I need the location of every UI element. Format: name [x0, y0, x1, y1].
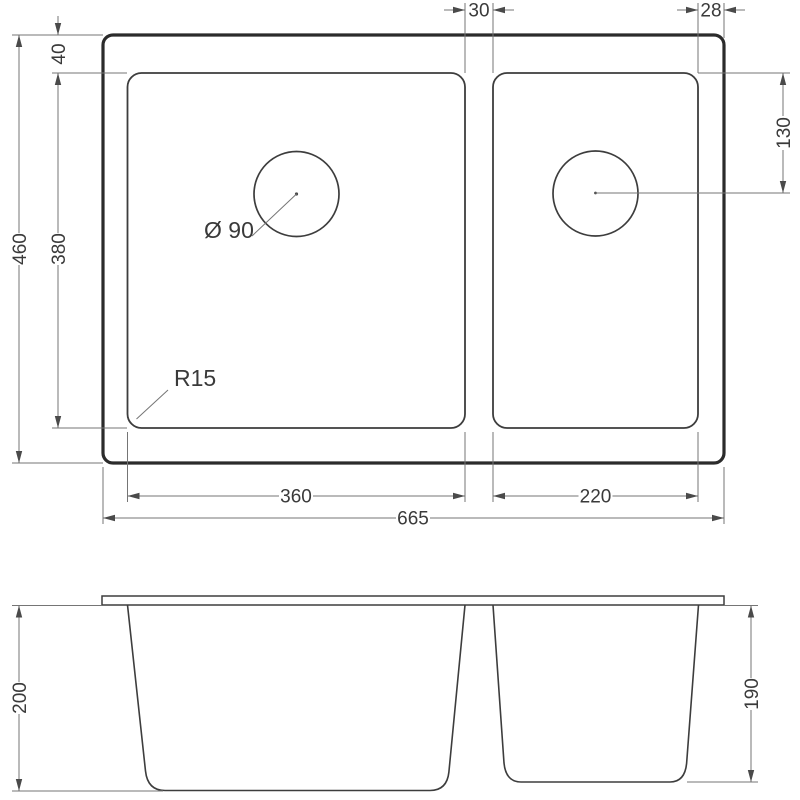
technical-drawing-canvas: 30 28 460 40: [0, 0, 800, 800]
callout-drain-diameter: Ø 90: [204, 194, 297, 243]
arrowhead: [16, 35, 22, 47]
right-bowl-plan: [493, 73, 698, 428]
rim-profile: [102, 596, 724, 605]
dim-label-divider-width: 30: [468, 1, 489, 22]
dim-label-left-bowl-depth: 200: [10, 682, 31, 714]
dimension-left-bowl-depth: 200: [10, 606, 163, 792]
dimension-overall-width: 665: [103, 467, 724, 530]
sink-dimension-drawing: 30 28 460 40: [0, 0, 800, 800]
arrowhead: [780, 181, 786, 193]
top-view: 30 28 460 40: [10, 1, 795, 530]
dimension-divider-width: 30: [444, 1, 514, 74]
arrowhead: [493, 493, 505, 499]
arrowhead: [712, 515, 724, 521]
dimension-right-bowl-width: 220: [493, 432, 698, 508]
arrowhead: [55, 416, 61, 428]
dimension-bowl-depth: 380: [49, 73, 127, 428]
arrowhead: [128, 493, 140, 499]
dim-label-bowl-depth: 380: [49, 233, 70, 265]
dimension-left-bowl-width: 360: [128, 432, 466, 508]
arrowhead: [55, 73, 61, 85]
left-bowl-profile: [128, 605, 466, 791]
right-bowl-profile: [493, 605, 699, 782]
label-corner-radius: R15: [174, 365, 216, 391]
dim-label-right-bowl-width: 220: [580, 487, 612, 508]
arrowhead: [103, 515, 115, 521]
dim-label-top-margin: 40: [49, 43, 70, 64]
arrowhead: [686, 493, 698, 499]
dim-label-right-bowl-depth: 190: [742, 678, 763, 710]
dimension-top-margin: 40: [49, 16, 70, 65]
arrowhead: [55, 23, 61, 35]
arrowhead: [453, 493, 465, 499]
dimension-right-margin: 28: [677, 1, 745, 74]
sink-outer-edge: [103, 35, 724, 463]
arrowhead: [748, 770, 754, 782]
dim-label-drain-offset: 130: [774, 117, 795, 149]
callout-corner-radius: R15: [137, 365, 217, 419]
arrowhead: [780, 73, 786, 85]
arrowhead: [16, 451, 22, 463]
arrowhead: [748, 606, 754, 618]
dimension-right-bowl-depth: 190: [687, 606, 763, 783]
dimension-drain-offset: 130: [596, 73, 796, 193]
leader-line: [137, 390, 169, 419]
dim-label-left-bowl-width: 360: [280, 487, 312, 508]
arrowhead: [724, 7, 736, 13]
label-drain-diameter: Ø 90: [204, 217, 254, 243]
dim-label-right-margin: 28: [700, 1, 721, 22]
dim-label-overall-width: 665: [397, 509, 429, 530]
front-view: 200 190: [10, 596, 763, 791]
arrowhead: [686, 7, 698, 13]
arrowhead: [493, 7, 505, 13]
arrowhead: [453, 7, 465, 13]
arrowhead: [16, 606, 22, 618]
dim-label-overall-depth: 460: [10, 233, 31, 265]
arrowhead: [16, 779, 22, 791]
